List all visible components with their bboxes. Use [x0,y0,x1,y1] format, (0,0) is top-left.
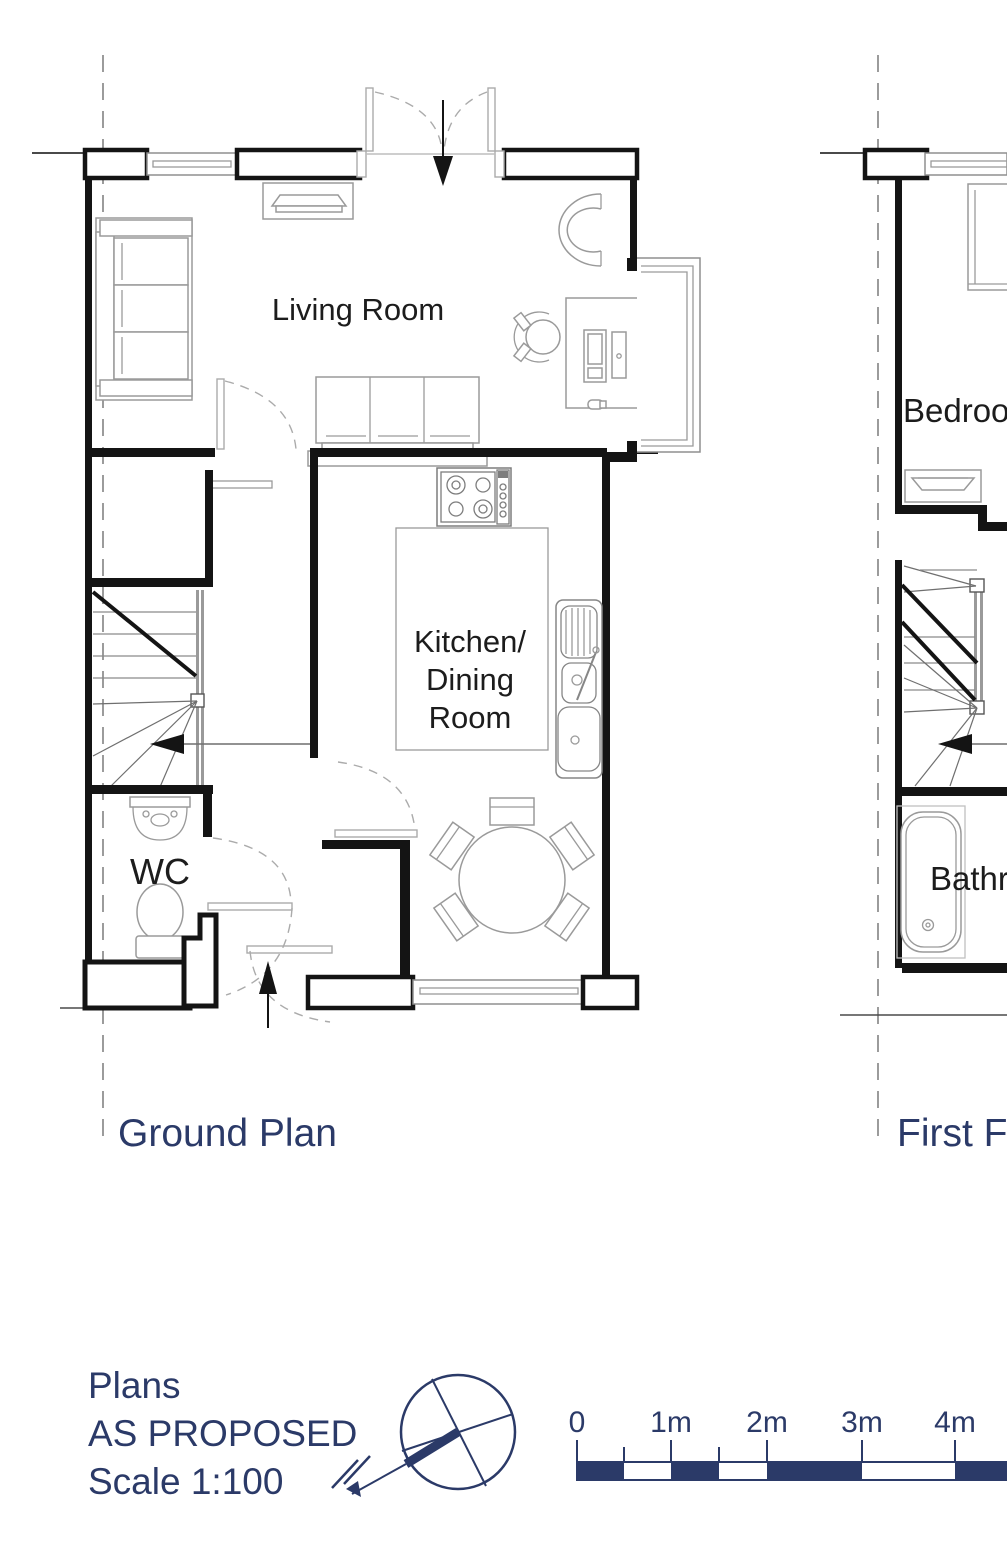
ground-floor-plan: WC [32,55,700,1155]
armchair [559,194,601,266]
bedroom-window [925,153,1007,175]
bedroom-label: Bedroom [903,392,1007,429]
exterior-wall [630,178,637,265]
entrance-arrow [433,100,453,186]
internal-wall [400,845,410,985]
living-room-window [147,153,237,175]
sink [556,600,602,778]
french-doors [357,88,504,186]
kitchen-door [335,762,417,837]
title-line-2: AS PROPOSED [88,1413,357,1454]
title-block: Plans AS PROPOSED Scale 1:100 [88,1365,357,1502]
first-floor-plan-title: First Floor Plan [897,1112,1007,1155]
basin [130,797,190,840]
internal-wall [895,787,1007,796]
scale-label-0: 0 [569,1406,586,1439]
exterior-wall [308,977,413,1008]
exterior-wall [895,178,902,512]
exterior-wall [865,150,927,178]
stairs [93,590,310,787]
internal-wall [92,785,213,794]
kitchen-label-2: Dining [426,662,514,697]
wc-door-swing [213,838,291,901]
internal-wall [978,522,1007,531]
exterior-wall [85,178,92,1008]
internal-wall [895,560,902,790]
wall-pier [184,915,216,1006]
sofa-left [96,218,192,400]
cupboard-shelf [210,481,272,488]
hob [437,468,511,526]
scale-label-3m: 3m [841,1406,883,1439]
internal-wall [92,448,215,457]
internal-wall [895,505,987,514]
internal-wall [310,448,318,758]
bed [968,184,1007,290]
title-line-1: Plans [88,1365,181,1406]
bedroom-tv-unit [905,470,981,502]
bay-window [627,258,700,454]
desk-chair [514,312,560,362]
internal-wall [205,470,213,582]
stairs-direction-arrow [150,734,310,754]
wc-label: WC [130,851,190,892]
title-line-3: Scale 1:100 [88,1461,283,1502]
ground-plan-title: Ground Plan [118,1112,337,1155]
internal-wall [310,448,607,457]
exterior-wall [504,150,637,178]
entrance-arrow [259,961,277,1028]
north-arrow-icon [332,1375,515,1497]
stairs-direction-arrow [938,734,1007,754]
kitchen-label-1: Kitchen/ [414,624,526,659]
internal-wall [902,963,1007,973]
scale-label-1m: 1m [650,1406,692,1439]
scale-label-2m: 2m [746,1406,788,1439]
living-room-door [217,379,296,449]
exterior-wall [583,977,637,1008]
first-floor-plan: Bedroom Bathroom First Floor Plan [820,55,1007,1155]
dining-table [430,798,594,941]
desk [566,298,640,409]
exterior-wall [85,150,147,178]
exterior-wall [237,150,360,178]
bathroom-label: Bathroom [930,860,1007,897]
kitchen-label-3: Room [429,700,512,735]
kitchen-window [413,980,585,1004]
scale-label-4m: 4m [934,1406,976,1439]
tv-unit [263,183,353,219]
stairs-first-floor [902,566,1007,786]
internal-wall [322,840,410,849]
exterior-wall [85,962,190,1008]
living-room-label: Living Room [272,292,444,327]
internal-wall [92,578,213,587]
scale-bar: 0 1m 2m 3m 4m [569,1406,1007,1480]
exterior-wall [602,458,610,985]
plans-drawing: WC [0,0,1007,1541]
